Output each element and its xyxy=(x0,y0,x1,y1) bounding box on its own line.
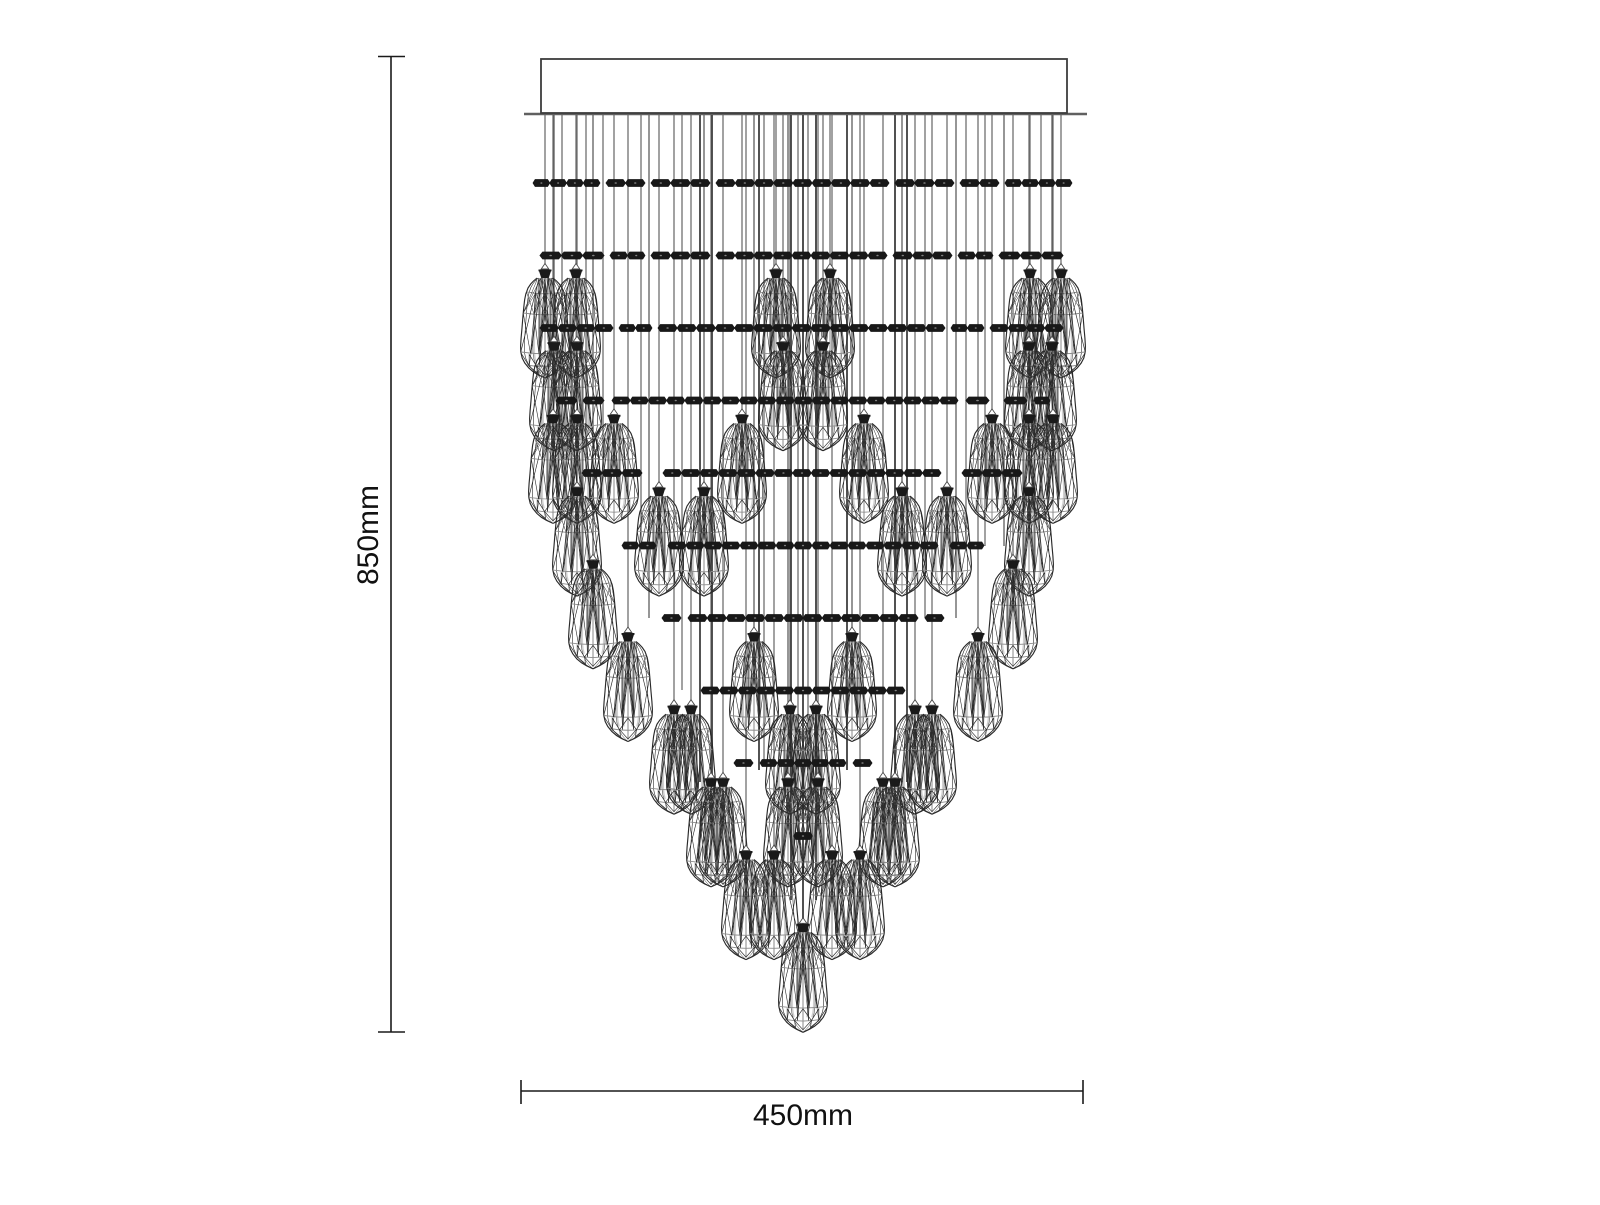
svg-text:450mm: 450mm xyxy=(753,1099,853,1132)
svg-text:850mm: 850mm xyxy=(352,485,385,585)
